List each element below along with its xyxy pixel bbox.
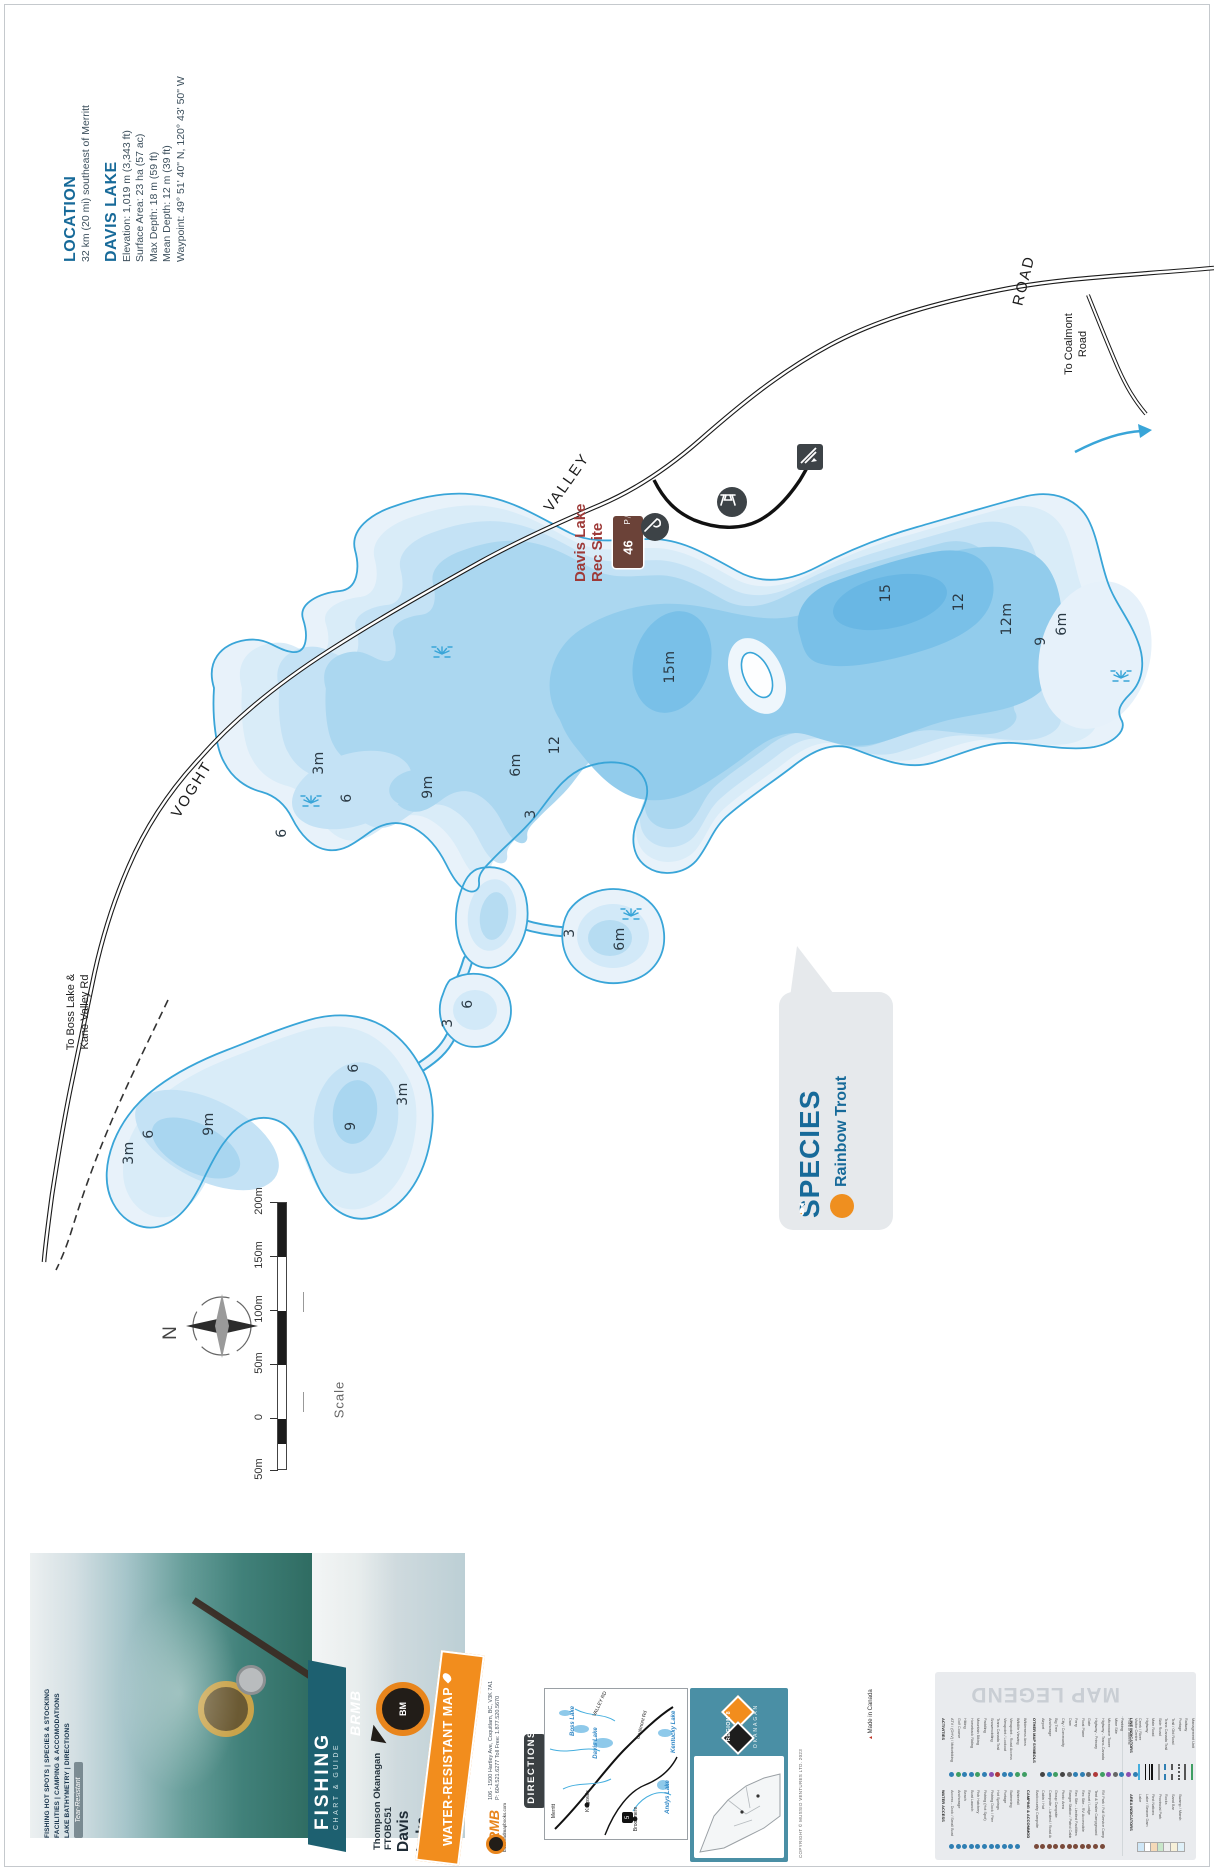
depth-label: 9 — [343, 1104, 359, 1148]
highway-5-shield: 5 — [622, 1812, 633, 1823]
cover-photo-panel — [30, 1553, 312, 1838]
depth-label: 6 — [346, 1046, 362, 1090]
legend-item-icon — [1047, 1772, 1052, 1777]
legend-item-icon — [956, 1772, 961, 1777]
depth-label: 3 — [523, 792, 539, 836]
legend-item-icon — [1067, 1844, 1072, 1849]
contact-phone: P: 604.521.6277 Toll Free: 1.877.520.567… — [495, 1665, 502, 1800]
legend-group-header: OTHER MAP SYMBOLS — [1031, 1716, 1038, 1782]
road-destination-label: To CoalmontRoad — [1062, 296, 1090, 392]
boat-launch-icon — [797, 444, 823, 470]
rec-site-number: 46 — [621, 533, 636, 563]
fish-icon — [830, 1194, 854, 1218]
legend-item-icon — [1015, 1844, 1020, 1849]
depth-label: 3m — [121, 1131, 137, 1175]
lake-detail-line: Surface Area: 23 ha (57 ac) — [134, 48, 148, 262]
legend-item-icon — [949, 1772, 954, 1777]
brmb-logo: BRMB — [347, 1676, 363, 1736]
directions-inset-map — [544, 1688, 688, 1840]
legend-item-icon — [1060, 1772, 1065, 1777]
water-highlight — [120, 1593, 240, 1793]
legend-line-sample — [1138, 1764, 1140, 1780]
legend-group-header: CAMPING & ACCOMMODATIONS — [1025, 1788, 1032, 1854]
tear-resistant-tag: Tear-Resistant — [74, 1762, 83, 1838]
legend-item-icon — [1008, 1844, 1013, 1849]
depth-label: 6m — [508, 743, 524, 787]
legend-item-icon — [1034, 1844, 1039, 1849]
scale-segment — [278, 1444, 286, 1469]
depth-label: 9m — [201, 1102, 217, 1146]
legend-item-icon — [1119, 1772, 1124, 1777]
scale-label: Scale — [332, 1345, 347, 1455]
legend-item-icon — [1086, 1772, 1091, 1777]
scale-tick-label: 100m — [253, 1289, 265, 1329]
lake-info-block: LOCATION 32 km (20 mi) southeast of Merr… — [62, 48, 188, 262]
legend-line-sample — [1158, 1764, 1160, 1780]
compass-rose — [182, 1286, 262, 1366]
depth-label: 3m — [395, 1072, 411, 1116]
depth-label: 6m — [1054, 602, 1070, 646]
depth-label: 3m — [311, 741, 327, 785]
legend-item-icon — [1100, 1844, 1105, 1849]
legend-item-icon — [956, 1844, 961, 1849]
location-text: 32 km (20 mi) southeast of Merritt — [80, 48, 94, 262]
inset-map-label: Merritt — [551, 1793, 557, 1829]
species-content: SPECIES Rainbow Trout — [794, 996, 854, 1218]
legend-item-icon — [1002, 1772, 1007, 1777]
copyright-line: COPYRIGHT © MUSSIO VENTURES LTD. 2023 — [798, 1688, 803, 1858]
scale-bar — [277, 1202, 287, 1470]
legend-item-icon — [975, 1772, 980, 1777]
legend-item-icon — [982, 1772, 987, 1777]
lake-detail-line: Elevation: 1,019 m (3,343 ft) — [121, 48, 135, 262]
legend-item-icon — [975, 1844, 980, 1849]
series-title: FISHING — [312, 1668, 334, 1830]
parking-camping-icon: P⧸▲ — [623, 500, 633, 530]
inset-map-label: Davis Lake — [593, 1725, 599, 1761]
lake-detail-line: Waypoint: 49° 51' 40" N, 120° 43' 50" W — [175, 48, 189, 262]
legend-item-icon — [995, 1772, 1000, 1777]
legend-item-icon — [969, 1772, 974, 1777]
legend-item-icon — [1086, 1844, 1091, 1849]
scale-tick — [270, 1202, 278, 1203]
made-in-canada: ▲ Made in Canada — [868, 1680, 874, 1740]
depth-label: 6 — [460, 982, 476, 1026]
legend-line-sample — [1171, 1764, 1173, 1780]
rec-site-sign-46: 46 P⧸▲ — [613, 516, 643, 568]
species-name: Rainbow Trout — [833, 1076, 851, 1187]
legend-item-icon — [1047, 1844, 1052, 1849]
legend-line-sample — [1184, 1764, 1186, 1780]
scale-tick — [270, 1470, 278, 1471]
legend-item-icon — [1015, 1772, 1020, 1777]
depth-label: 6 — [274, 811, 290, 855]
legend-item-icon — [1093, 1844, 1098, 1849]
scale-tick — [270, 1418, 278, 1419]
legend-line-sample — [1178, 1764, 1180, 1780]
region-bc-map — [694, 1756, 784, 1858]
map-legend-title: MAP LEGEND — [938, 1682, 1120, 1706]
legend-group-header: ACTIVITIES — [940, 1716, 947, 1782]
legend-item-icon — [1040, 1844, 1045, 1849]
legend-line-sample — [1191, 1764, 1193, 1780]
fishing-icon — [641, 513, 669, 541]
compass-n-label: N — [160, 1318, 182, 1348]
depth-label: 3 — [562, 911, 578, 955]
contact-address: 106 - 1500 Hartley Ave, Coquitlam, BC, V… — [488, 1665, 495, 1800]
legend-item-icon — [1106, 1772, 1111, 1777]
picnic-area-icon — [717, 487, 747, 517]
depth-label: 3 — [440, 1001, 456, 1045]
inset-map-label: Brookmere — [633, 1801, 639, 1837]
region-series-line: Thompson Okanagan FTOBC51 — [372, 1724, 394, 1850]
water-resistant-label: WATER-RESISTANT MAP — [441, 1640, 455, 1846]
legend-item-icon — [962, 1772, 967, 1777]
region-caption: OKANAGAN — [753, 1700, 759, 1752]
legend-item: Management Unit — [1189, 1716, 1196, 1782]
legend-item-icon — [1002, 1844, 1007, 1849]
scale-tick-label: 0 — [253, 1397, 265, 1437]
legend-item-icon — [1080, 1772, 1085, 1777]
scale-segment — [278, 1203, 286, 1257]
legend-item-icon — [1040, 1772, 1045, 1777]
lake-heading: DAVIS LAKE — [103, 48, 121, 262]
photo-caption: FISHING HOT SPOTS | SPECIES & STOCKING — [44, 1680, 51, 1838]
coalmont-branch-road — [1088, 295, 1146, 414]
inset-map-label: Andys Lake — [665, 1779, 671, 1815]
maple-leaf-icon: ▲ — [868, 1735, 874, 1740]
legend-item-icon — [989, 1844, 994, 1849]
legend-item-icon — [995, 1844, 1000, 1849]
depth-label: 6 — [141, 1112, 157, 1156]
species-heading: SPECIES — [794, 996, 826, 1218]
legend-item-icon — [989, 1772, 994, 1777]
legend-group-header: AREA INDICATORS — [1128, 1792, 1135, 1858]
inset-map-label: Kingsvale — [585, 1783, 591, 1819]
water-drop-icon — [441, 1671, 453, 1683]
legend-item-icon — [1073, 1844, 1078, 1849]
depth-label: 9 — [1033, 619, 1049, 663]
depth-label: 12 — [951, 580, 967, 624]
legend-item: Waterfall — [1014, 1788, 1021, 1854]
legend-item-icon — [1053, 1844, 1058, 1849]
depth-label: 6 — [339, 776, 355, 820]
scale-segment — [278, 1311, 286, 1365]
road-destination-label: To Boss Lake &Kane Valley Rd — [64, 962, 92, 1062]
legend-item-icon — [949, 1844, 954, 1849]
scale-tick-label: 150m — [253, 1235, 265, 1275]
scale-tick — [270, 1256, 278, 1257]
inset-map-label: Boss Lake — [570, 1703, 576, 1739]
depth-label: 12 — [547, 723, 563, 767]
legend-area-swatch — [1177, 1842, 1185, 1852]
legend-item-icon — [1053, 1772, 1058, 1777]
legend-item-icon — [1022, 1772, 1027, 1777]
fishing-reel-spool — [236, 1665, 266, 1695]
legend-item-icon — [1060, 1844, 1065, 1849]
lake-detail-line: Mean Depth: 12 m (39 ft) — [161, 48, 175, 262]
legend-item: Wilderness Area — [1021, 1716, 1028, 1782]
scale-tick — [270, 1364, 278, 1365]
depth-label: 15m — [662, 645, 678, 689]
scale-tick-label: 50m — [253, 1449, 265, 1489]
legend-group-header: WATER ACCESS — [940, 1788, 947, 1854]
photo-caption: LAKE BATHYMETRY | DIRECTIONS — [64, 1680, 71, 1838]
legend-line-sample — [1164, 1764, 1166, 1780]
rec-site-label: Davis Lake Rec Site — [572, 494, 606, 582]
legend-item-icon — [969, 1844, 974, 1849]
scale-segment — [278, 1419, 286, 1444]
legend-item-icon — [962, 1844, 967, 1849]
legend-line-sample — [1151, 1764, 1153, 1780]
legend-item: Swamp / Marsh — [1176, 1792, 1183, 1858]
legend-group-header: LINE INDICATORS — [1128, 1716, 1135, 1782]
lake-detail-line: Max Depth: 18 m (59 ft) — [148, 48, 162, 262]
legend-item-icon — [1073, 1772, 1078, 1777]
legend-item-icon — [1100, 1772, 1105, 1777]
directions-tab-label: DIRECTIONS — [526, 1730, 537, 1804]
legend-item-icon — [1080, 1844, 1085, 1849]
scale-tick — [270, 1310, 278, 1311]
lake-details: Elevation: 1,019 m (3,343 ft)Surface Are… — [121, 48, 189, 262]
scale-segment — [278, 1365, 286, 1419]
depth-label: 15 — [878, 571, 894, 615]
legend-item-icon — [1093, 1772, 1098, 1777]
legend-item-icon — [1067, 1772, 1072, 1777]
scale-tick-label: 200m — [253, 1181, 265, 1221]
inset-map-label: Kentucky Lake — [671, 1717, 677, 1753]
scale-segment — [278, 1257, 286, 1311]
depth-label: 9m — [420, 765, 436, 809]
outflow-arrow-icon — [1075, 431, 1142, 452]
legend-item-icon — [982, 1844, 987, 1849]
legend-item-icon — [1113, 1772, 1118, 1777]
scale-tick-label: 50m — [253, 1343, 265, 1383]
photo-caption: FACILITIES | CAMPING & ACCOMODATIONS — [54, 1680, 61, 1838]
series-subtitle: CHART & GUIDE — [333, 1668, 340, 1830]
badge-mini-icon — [486, 1834, 506, 1854]
location-heading: LOCATION — [62, 48, 80, 262]
depth-label: 12m — [999, 597, 1015, 641]
region-8-label: REGION 8 — [726, 1700, 732, 1752]
scale-dash — [303, 1392, 304, 1412]
scale-dash — [303, 1292, 304, 1312]
legend-item: RV Park / Full Service Campground — [1099, 1788, 1106, 1854]
legend-item-icon — [1008, 1772, 1013, 1777]
